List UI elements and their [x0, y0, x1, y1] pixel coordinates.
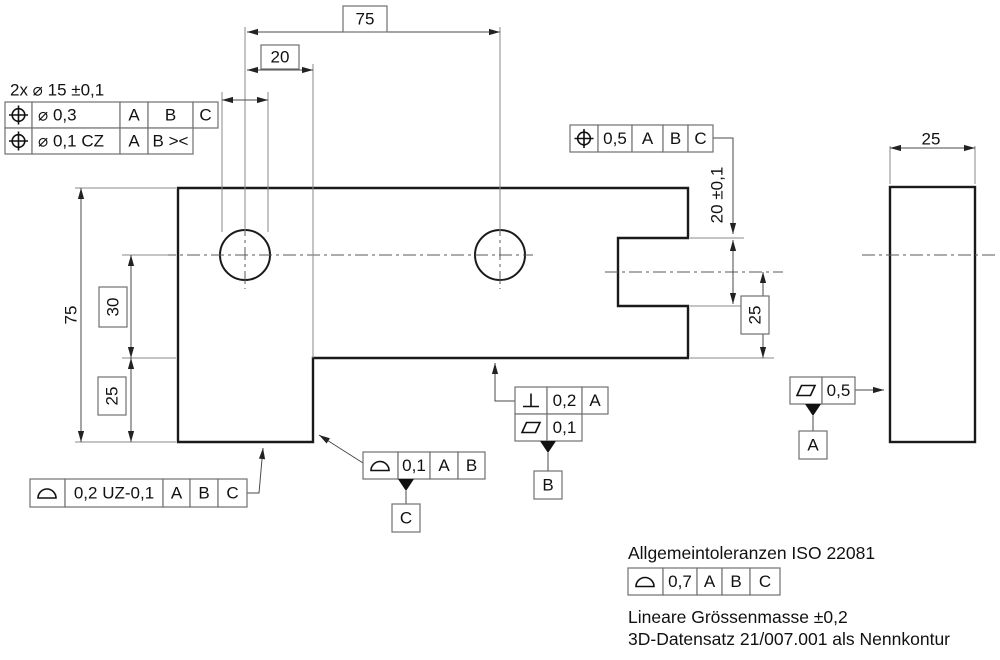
- note-line-1: Allgemeintoleranzen ISO 22081: [628, 543, 875, 563]
- dim-text-step-to-bottom: 25: [103, 387, 122, 406]
- dim-text-overall-height: 75: [62, 306, 81, 325]
- engineering-drawing-canvas: 75 20 2x ⌀ 15 ±0,1 75 30 25 20 ±0,1 25 2…: [0, 0, 1000, 660]
- note-line-3: 3D-Datensatz 21/007.001 als Nennkontur: [628, 629, 950, 649]
- fcf-datum: C: [199, 106, 211, 125]
- fcf-datum: C: [759, 572, 771, 591]
- fcf-tolerance: ⌀ 0,1 CZ: [38, 132, 104, 151]
- fcf-tolerance: 0,1: [402, 456, 426, 475]
- fcf-holes: ⌀ 0,3 A B C ⌀ 0,1 CZ A B ><: [5, 102, 218, 154]
- main-view: [178, 188, 688, 442]
- fcf-datum: B: [165, 106, 176, 125]
- datum-triangle-b: [540, 441, 556, 453]
- dim-text-hole-callout: 2x ⌀ 15 ±0,1: [10, 81, 104, 100]
- fcf-datum: A: [589, 391, 601, 410]
- side-view-outline: [890, 187, 975, 442]
- datum-label-a: A: [807, 436, 819, 455]
- dim-text-side-thickness: 25: [922, 130, 941, 149]
- fcf-cell: [30, 479, 65, 507]
- leader-step-fcf: [319, 435, 363, 463]
- fcf-datum: B ><: [153, 132, 189, 151]
- fcf-bottom-profile: 0,2 UZ-0,1 A B C: [30, 479, 247, 507]
- dimension-texts: 75 20 2x ⌀ 15 ±0,1 75 30 25 20 ±0,1 25 2…: [10, 6, 940, 415]
- datum-triangle-c: [398, 479, 414, 491]
- fcf-datum: A: [128, 106, 140, 125]
- dim-text-hole-to-step: 20: [271, 48, 290, 67]
- fcf-cell: [363, 452, 398, 479]
- fcf-tolerance: 0,2: [553, 391, 577, 410]
- fcf-datum: A: [438, 456, 450, 475]
- fcf-step-face: 0,1 A B C: [363, 452, 485, 532]
- fcf-cell: [628, 568, 663, 595]
- datum-label-c: C: [400, 509, 412, 528]
- dim-text-notch-center-to-bottom: 25: [746, 306, 765, 325]
- datum-label-b: B: [542, 476, 553, 495]
- fcf-datum: A: [642, 129, 654, 148]
- fcf-datum: B: [670, 129, 681, 148]
- centerlines: [163, 223, 998, 289]
- dim-text-center-to-step: 30: [104, 298, 123, 317]
- fcf-cell: [515, 414, 547, 441]
- fcf-datum: A: [128, 132, 140, 151]
- fcf-datum: C: [694, 129, 706, 148]
- dim-text-hole-pitch: 75: [356, 10, 375, 29]
- fcf-tolerance: ⌀ 0,3: [38, 106, 77, 125]
- fcf-tolerance: 0,7: [668, 572, 692, 591]
- fcf-datum: B: [730, 572, 741, 591]
- main-view-outline: [178, 188, 688, 442]
- fcf-tolerance: 0,5: [827, 381, 851, 400]
- drawing-svg: 75 20 2x ⌀ 15 ±0,1 75 30 25 20 ±0,1 25 2…: [0, 0, 1000, 660]
- leader-bottom-fcf: [495, 363, 515, 401]
- datum-triangle-a: [805, 404, 821, 416]
- fcf-tolerance: 0,5: [603, 129, 627, 148]
- fcf-datum: A: [704, 572, 716, 591]
- fcf-bottom-face: 0,2 A 0,1 B: [515, 387, 608, 499]
- dim-text-notch-width: 20 ±0,1: [708, 167, 727, 224]
- fcf-tolerance: 0,2 UZ-0,1: [74, 484, 154, 503]
- fcf-datum: B: [466, 456, 477, 475]
- fcf-side-face: 0,5 A: [790, 377, 855, 459]
- fcf-datum: A: [171, 484, 183, 503]
- note-line-2: Lineare Grössenmasse ±0,2: [628, 607, 848, 627]
- fcf-cell: [790, 377, 822, 404]
- fcf-notch: 0,5 A B C: [570, 125, 713, 152]
- fcf-tolerance: 0,1: [553, 418, 577, 437]
- fcf-datum: B: [198, 484, 209, 503]
- notes-block: Allgemeintoleranzen ISO 22081 0,7 A B C …: [628, 543, 950, 649]
- fcf-datum: C: [226, 484, 238, 503]
